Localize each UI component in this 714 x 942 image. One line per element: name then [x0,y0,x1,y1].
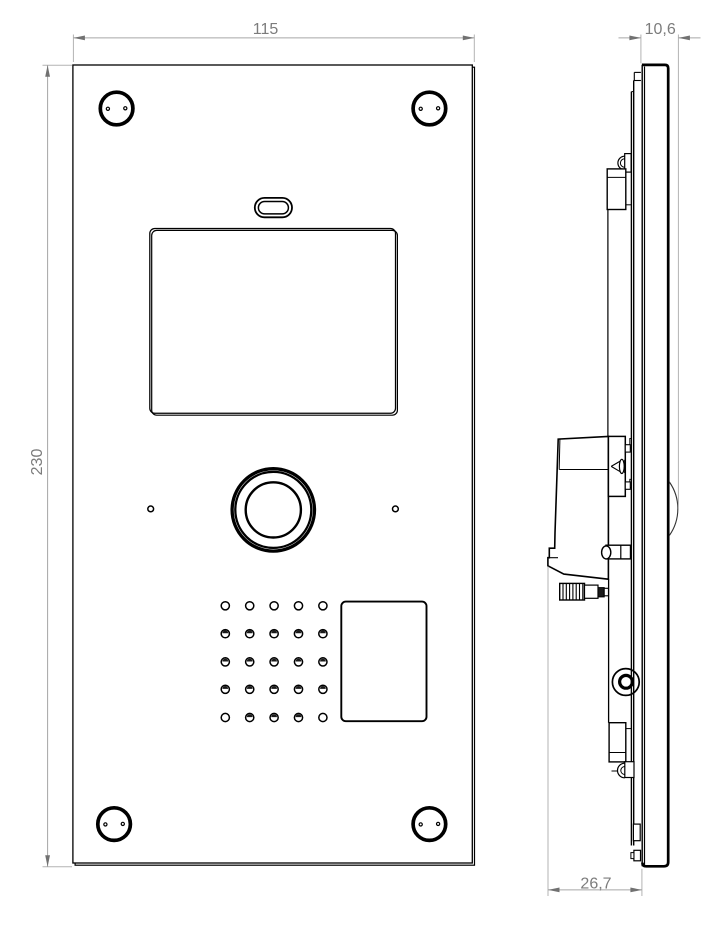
svg-text:230: 230 [29,449,46,476]
svg-text:26,7: 26,7 [580,875,611,892]
svg-text:115: 115 [253,21,279,38]
svg-text:10,6: 10,6 [645,21,676,38]
